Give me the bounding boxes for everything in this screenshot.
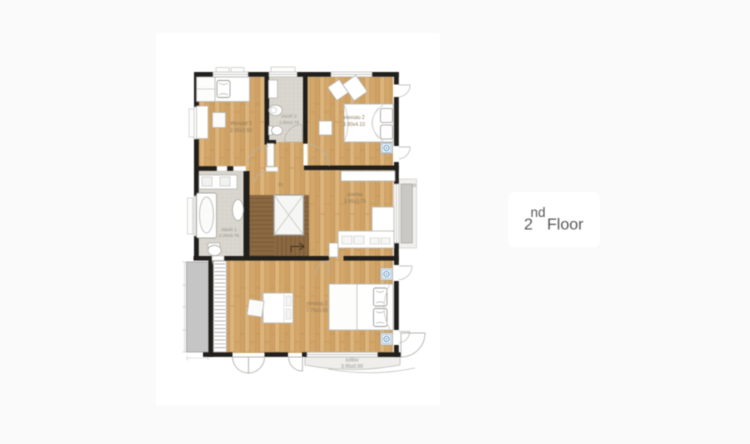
svg-text:nd: nd: [531, 205, 546, 220]
svg-text:viaviri 2: viaviri 2: [281, 114, 297, 119]
svg-text:2.95x3.90: 2.95x3.90: [230, 128, 252, 134]
svg-text:3.95x3.75: 3.95x3.75: [344, 199, 366, 205]
svg-text:B1: B1: [278, 182, 284, 187]
svg-text:viavlav: viavlav: [347, 192, 363, 198]
svg-text:1.60x2.75: 1.60x2.75: [279, 120, 300, 125]
svg-text:Floor: Floor: [547, 217, 584, 234]
svg-text:7.75x3.95: 7.75x3.95: [306, 308, 328, 314]
svg-text:szilisv: szilisv: [345, 358, 359, 364]
svg-text:2.20x3.75: 2.20x3.75: [219, 233, 240, 238]
svg-text:viavuau 1: viavuau 1: [306, 301, 328, 307]
svg-text:viaviri 1: viaviri 1: [221, 227, 237, 232]
svg-text:3.95x0.90: 3.95x0.90: [341, 364, 363, 370]
svg-text:3.90x4.10: 3.90x4.10: [343, 122, 365, 128]
svg-text:viavuau 2: viavuau 2: [343, 115, 365, 121]
svg-text:viavuau 3: viavuau 3: [230, 121, 252, 127]
